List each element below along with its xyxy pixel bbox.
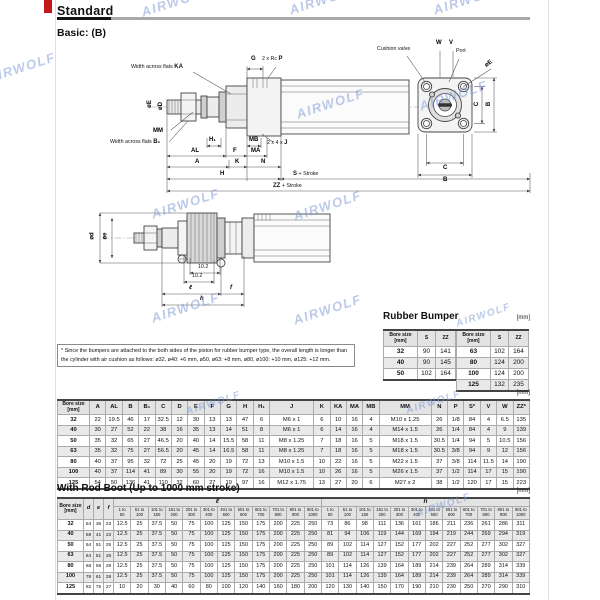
- cell: 139: [373, 562, 390, 573]
- cell: 114: [356, 541, 373, 552]
- cell: 127: [373, 541, 390, 552]
- cell: 17: [480, 467, 496, 478]
- bore-cell: 32: [384, 347, 418, 358]
- cell: 13: [204, 415, 220, 426]
- table-header-row: 1 to5051 to100101 to150151 to200201 to30…: [58, 507, 530, 520]
- cell: 47: [237, 415, 253, 426]
- cell: 37: [106, 467, 122, 478]
- cell: 125: [217, 530, 234, 541]
- cell: 264: [460, 572, 477, 583]
- col-header-bore: Bore size[mm]: [58, 400, 90, 415]
- cell: 35: [188, 425, 204, 436]
- cell: 11.5: [480, 457, 496, 468]
- cell: 52: [122, 425, 138, 436]
- cell: 4: [480, 415, 496, 426]
- cell: 27: [139, 446, 155, 457]
- col-header: H₁: [253, 400, 269, 415]
- dimensions-table: Bore size[mm]AALBB₁CDEFGHH₁JKKAMAMBMMNPS…: [57, 399, 530, 490]
- cell: 214: [425, 562, 442, 573]
- cell: 40: [165, 583, 182, 594]
- cell: 45: [188, 457, 204, 468]
- cell: 1/4: [448, 436, 464, 447]
- col-header: K: [314, 400, 330, 415]
- col-header: MA: [346, 400, 362, 415]
- cell: 75: [183, 572, 200, 583]
- cell: 314: [495, 572, 512, 583]
- cell: 35: [90, 436, 106, 447]
- cell: 65: [122, 436, 138, 447]
- table-row: 804037953272254520197213M10 x 1.51022165…: [58, 457, 530, 468]
- bore-cell: 100: [58, 572, 84, 583]
- cell: 37.5: [148, 562, 165, 573]
- table-row: 63102164: [457, 347, 529, 358]
- cell: 94: [339, 530, 356, 541]
- cell: 75: [183, 541, 200, 552]
- cell: 27: [106, 425, 122, 436]
- cell: 61: [94, 572, 104, 583]
- cell: 40: [188, 436, 204, 447]
- cell: 227: [443, 551, 460, 562]
- table-header-row: Bore size[mm]defℓh: [58, 498, 530, 507]
- cell: 270: [477, 583, 494, 594]
- label-n: N: [261, 159, 265, 165]
- cell: 95: [122, 457, 138, 468]
- cell: 100: [200, 562, 217, 573]
- cell: 310: [512, 583, 529, 594]
- cell: 102: [339, 541, 356, 552]
- cell: 100: [200, 551, 217, 562]
- cell: M18 x 1.5: [379, 436, 431, 447]
- col-header: F: [204, 400, 220, 415]
- cell: 100: [200, 541, 217, 552]
- cell: 102: [418, 369, 436, 381]
- cell: 30: [171, 467, 187, 478]
- stroke-range-header: 701 to800: [477, 507, 494, 520]
- cell: 37.5: [148, 551, 165, 562]
- cell: 106: [356, 530, 373, 541]
- cell: 119: [373, 530, 390, 541]
- cell: 15.5: [221, 436, 237, 447]
- cell: 250: [304, 562, 321, 573]
- cell: 25: [131, 562, 148, 573]
- cell: 5: [363, 446, 379, 457]
- cell: M14 x 1.5: [379, 425, 431, 436]
- cell: 339: [512, 572, 529, 583]
- cell: M10 x 1.25: [379, 415, 431, 426]
- label-a: A: [195, 159, 199, 165]
- cell: 16: [346, 467, 362, 478]
- cell: 54: [84, 520, 94, 531]
- col-header: G: [221, 400, 237, 415]
- label-f: F: [233, 148, 237, 154]
- col-header: P: [448, 400, 464, 415]
- cell: 11: [253, 436, 269, 447]
- table-row: 5064512512.52537.55075100125150175200225…: [58, 541, 530, 552]
- col-header: S: [418, 330, 436, 347]
- cell: 16: [346, 436, 362, 447]
- rubber-bumper-table-left: Bore size[mm]SZZ3290141409014550102164: [383, 329, 456, 381]
- cell: 9: [480, 446, 496, 457]
- stroke-range-header: 601 to700: [460, 507, 477, 520]
- cell: 202: [425, 541, 442, 552]
- cell: 125: [217, 520, 234, 531]
- cell: 7: [314, 436, 330, 447]
- col-header: E: [188, 400, 204, 415]
- cell: 1/8: [448, 415, 464, 426]
- cell: 126: [356, 572, 373, 583]
- bore-cell: 100: [457, 369, 491, 380]
- cell: 36: [94, 520, 104, 531]
- bore-cell: 80: [457, 358, 491, 369]
- cell: 45: [188, 446, 204, 457]
- cell: 12.5: [114, 551, 131, 562]
- cell: 12: [497, 446, 513, 457]
- stroke-range-header: 701 to800: [269, 507, 286, 520]
- cell: 25: [131, 520, 148, 531]
- cell: 12.5: [114, 562, 131, 573]
- cell: 16: [346, 446, 362, 457]
- cell: 101: [321, 562, 338, 573]
- cell: 50: [165, 520, 182, 531]
- cell: 1/2: [448, 478, 464, 489]
- cell: 100: [200, 572, 217, 583]
- bore-cell: 125: [58, 583, 84, 594]
- cell: 200: [509, 369, 529, 380]
- cell: 189: [408, 572, 425, 583]
- label-key-b1: B₁: [153, 139, 160, 145]
- cell: 152: [391, 541, 408, 552]
- cell: 58: [84, 530, 94, 541]
- cell: 290: [495, 583, 512, 594]
- cell: 10: [314, 467, 330, 478]
- cell: 32.5: [155, 415, 171, 426]
- cell: 200: [269, 572, 286, 583]
- bumper-note: * Since the bumpers are attached to the …: [57, 344, 355, 367]
- cell: 225: [287, 572, 304, 583]
- label-port: Port: [456, 49, 466, 54]
- cell: 219: [443, 530, 460, 541]
- label-text: 2 x 4 x: [267, 140, 283, 146]
- label-text: Width across flats: [131, 64, 173, 70]
- cell: 20: [346, 478, 362, 489]
- cell: M27 x 2: [379, 478, 431, 489]
- cell: 190: [513, 467, 530, 478]
- cell: 5: [363, 436, 379, 447]
- watermark: AIRWOLF: [287, 0, 359, 18]
- cell: 41: [94, 530, 104, 541]
- rubber-bumper-tables: Bore size[mm]SZZ3290141409014550102164 B…: [383, 329, 529, 392]
- cell: 89: [155, 467, 171, 478]
- cell: 68: [84, 562, 94, 573]
- cell: 30: [148, 583, 165, 594]
- table-row: 4090145: [384, 358, 456, 369]
- cell: 186: [425, 520, 442, 531]
- rod-boot-table: Bore size[mm]defℓh1 to5051 to100101 to15…: [57, 497, 530, 595]
- cell: 86: [339, 520, 356, 531]
- cell: 156: [513, 446, 530, 457]
- cell: 16: [171, 425, 187, 436]
- label-boot-h: h: [200, 296, 204, 302]
- cell: 200: [269, 562, 286, 573]
- cell: 130: [339, 583, 356, 594]
- cell: 125: [217, 572, 234, 583]
- cell: 94: [464, 446, 480, 457]
- cell: 1/4: [448, 425, 464, 436]
- cell: 90: [418, 358, 436, 369]
- cell: 20: [171, 446, 187, 457]
- cell: 6: [314, 415, 330, 426]
- cell: 6: [314, 425, 330, 436]
- stroke-range-header: 51 to100: [339, 507, 356, 520]
- col-header: KA: [330, 400, 346, 415]
- cell: 125: [217, 562, 234, 573]
- stroke-range-header: 151 to200: [373, 507, 390, 520]
- cell: 294: [495, 530, 512, 541]
- label-width-across-flats-ka: Width across flats KA: [131, 64, 183, 70]
- cell: 150: [235, 551, 252, 562]
- table-header-row: Bore size[mm]AALBB₁CDEFGHH₁JKKAMAMBMMNPS…: [58, 400, 530, 415]
- cell: 170: [391, 583, 408, 594]
- table-row: 10078612912.52537.5507510012515017520022…: [58, 572, 530, 583]
- cell: 239: [443, 572, 460, 583]
- cell: 200: [269, 541, 286, 552]
- stroke-range-header: 51 to100: [131, 507, 148, 520]
- cell: 175: [252, 530, 269, 541]
- label-ma: MA: [251, 148, 260, 154]
- cell: 200: [269, 530, 286, 541]
- cell: 175: [252, 562, 269, 573]
- cell: 190: [513, 457, 530, 468]
- cell: M22 x 1.5: [379, 457, 431, 468]
- cell: 16: [253, 478, 269, 489]
- stroke-range-header: 1 to50: [114, 507, 131, 520]
- cell: 14: [204, 446, 220, 457]
- cell: 15: [497, 478, 513, 489]
- bore-cell: 63: [457, 347, 491, 358]
- col-header: ZZ*: [513, 400, 530, 415]
- col-header: C: [155, 400, 171, 415]
- table-row: 40302752223816351314518M6 x 1614164M14 x…: [58, 425, 530, 436]
- table-row: 50102164: [384, 369, 456, 381]
- cell: 78: [84, 572, 94, 583]
- cell: 20: [171, 436, 187, 447]
- stroke-range-header: 101 to150: [356, 507, 373, 520]
- cell: 75: [183, 520, 200, 531]
- section-subtitle: Basic: (B): [57, 27, 106, 39]
- bore-cell: 100: [58, 467, 90, 478]
- cell: 58: [94, 562, 104, 573]
- cell: 35: [90, 446, 106, 457]
- stroke-range-header: 301 to400: [408, 507, 425, 520]
- page-corner-tab: [44, 0, 52, 13]
- cell: 12.5: [114, 520, 131, 531]
- label-g: G: [251, 56, 256, 62]
- cell: 46.5: [155, 436, 171, 447]
- cell: 30: [90, 425, 106, 436]
- cell: 311: [512, 520, 529, 531]
- stroke-range-header: 1 to50: [321, 507, 338, 520]
- cell: 277: [477, 551, 494, 562]
- cell: 120: [464, 478, 480, 489]
- label-v: V: [449, 40, 453, 46]
- label-h1: H₁: [209, 137, 216, 143]
- table-row: 8068582912.52537.55075100125150175200225…: [58, 562, 530, 573]
- cell: 37: [106, 457, 122, 468]
- col-header: H: [237, 400, 253, 415]
- cell: 23: [104, 520, 114, 531]
- cell: 327: [512, 541, 529, 552]
- cell: 175: [252, 551, 269, 562]
- cell: 252: [460, 541, 477, 552]
- cell: 145: [436, 358, 456, 369]
- cell: 64: [84, 551, 94, 562]
- cell: 1/2: [448, 467, 464, 478]
- cell: 12.5: [114, 541, 131, 552]
- cell: 26: [431, 425, 447, 436]
- cell: 50: [165, 551, 182, 562]
- stroke-range-header: 601 to700: [252, 507, 269, 520]
- cell: 26: [431, 415, 447, 426]
- cell: 127: [373, 551, 390, 562]
- cell: 29: [104, 572, 114, 583]
- cell: 22: [139, 425, 155, 436]
- cell: 175: [252, 572, 269, 583]
- cell: 90: [418, 347, 436, 358]
- cell: 250: [304, 530, 321, 541]
- cell: 25: [104, 541, 114, 552]
- cell: 82: [84, 583, 94, 594]
- cell: 100: [200, 530, 217, 541]
- cell: M6 x 1: [270, 425, 314, 436]
- col-header: N: [431, 400, 447, 415]
- table-row: 633532752756.520451416.55811M8 x 1.25718…: [58, 446, 530, 457]
- cylinder-side-view-svg: [55, 42, 555, 202]
- cell: 180: [287, 583, 304, 594]
- cell: 51: [94, 551, 104, 562]
- cell: 150: [235, 572, 252, 583]
- cell: M18 x 1.5: [379, 446, 431, 457]
- basic-cylinder-drawing: Width across flats KA G 2 x Rc P Cushion…: [55, 42, 555, 202]
- bore-cell: 40: [384, 358, 418, 369]
- cell: 250: [304, 541, 321, 552]
- cell: 244: [460, 530, 477, 541]
- cell: 140: [356, 583, 373, 594]
- cell: 5: [363, 457, 379, 468]
- cell: 94: [464, 436, 480, 447]
- label-text: Width across flats: [110, 139, 152, 145]
- cell: 136: [391, 520, 408, 531]
- cell: 161: [408, 520, 425, 531]
- label-boot-f: f: [230, 285, 232, 291]
- cell: 13: [204, 425, 220, 436]
- cell: 200: [269, 520, 286, 531]
- cell: 98: [356, 520, 373, 531]
- label-k: K: [235, 159, 239, 165]
- label-text: + Stroke: [282, 183, 302, 189]
- cell: 164: [436, 369, 456, 381]
- col-header-bore: Bore size[mm]: [58, 498, 84, 520]
- cell: 194: [425, 530, 442, 541]
- stroke-range-header: 201 to300: [183, 507, 200, 520]
- cell: 190: [408, 583, 425, 594]
- stroke-range-header: 801 to900: [495, 507, 512, 520]
- stroke-range-header: 401 to500: [425, 507, 442, 520]
- cell: 175: [252, 520, 269, 531]
- cell: 125: [217, 551, 234, 562]
- cell: 302: [495, 541, 512, 552]
- watermark: AIRWOLF: [0, 49, 58, 85]
- cell: 114: [339, 562, 356, 573]
- stroke-range-header: 301 to400: [200, 507, 217, 520]
- cell: 202: [425, 551, 442, 562]
- cell: 230: [443, 583, 460, 594]
- label-key-zz: ZZ: [273, 183, 280, 189]
- cell: 314: [495, 562, 512, 573]
- cell: 144: [391, 530, 408, 541]
- cell: 114: [356, 551, 373, 562]
- cell: 160: [269, 583, 286, 594]
- cell: 210: [425, 583, 442, 594]
- cell: 211: [443, 520, 460, 531]
- cell: 19: [221, 457, 237, 468]
- rubber-bumper-table-right: Bore size[mm]SZZ631021648012420010012420…: [456, 329, 529, 392]
- cell: 5: [363, 467, 379, 478]
- cell: 5: [480, 436, 496, 447]
- cell: 89: [321, 551, 338, 562]
- label-mb: MB: [249, 137, 258, 143]
- cell: 4: [480, 425, 496, 436]
- cell: 4: [363, 415, 379, 426]
- stroke-range-header: 901 to1000: [304, 507, 321, 520]
- cell: 26: [330, 467, 346, 478]
- col-header-bore: Bore size[mm]: [457, 330, 491, 347]
- cell: 12: [171, 415, 187, 426]
- cell: 236: [460, 520, 477, 531]
- cell: 58: [237, 446, 253, 457]
- cell: 139: [373, 572, 390, 583]
- col-header: A: [90, 400, 106, 415]
- cell: M26 x 1.5: [379, 467, 431, 478]
- cell: 72: [237, 457, 253, 468]
- cell: 225: [287, 562, 304, 573]
- cell: 56.5: [155, 446, 171, 457]
- cell: 75: [183, 530, 200, 541]
- table-row: 1258275271020304060801001201401601802001…: [58, 583, 530, 594]
- cell: 22: [90, 415, 106, 426]
- table-row: 100124200: [457, 369, 529, 380]
- cell: M10 x 1.5: [270, 457, 314, 468]
- cell: 7: [314, 446, 330, 457]
- label-boot-od: ød: [90, 232, 96, 239]
- cell: 13: [221, 415, 237, 426]
- cell: 37: [431, 467, 447, 478]
- bore-cell: 50: [384, 369, 418, 381]
- cell: 60: [183, 583, 200, 594]
- cell: 30.5: [431, 446, 447, 457]
- cell: 250: [304, 520, 321, 531]
- cell: 124: [491, 369, 509, 380]
- cell: 101: [321, 572, 338, 583]
- cell: 339: [512, 562, 529, 573]
- col-header: MB: [363, 400, 379, 415]
- label-mounting-thread: 2 x 4 x J: [267, 140, 287, 146]
- cell: 14: [330, 425, 346, 436]
- cell: 150: [235, 530, 252, 541]
- col-header: J: [270, 400, 314, 415]
- cell: 302: [495, 551, 512, 562]
- label-rc-port: 2 x Rc P: [262, 56, 283, 62]
- label-oe-rod: øE: [147, 100, 153, 108]
